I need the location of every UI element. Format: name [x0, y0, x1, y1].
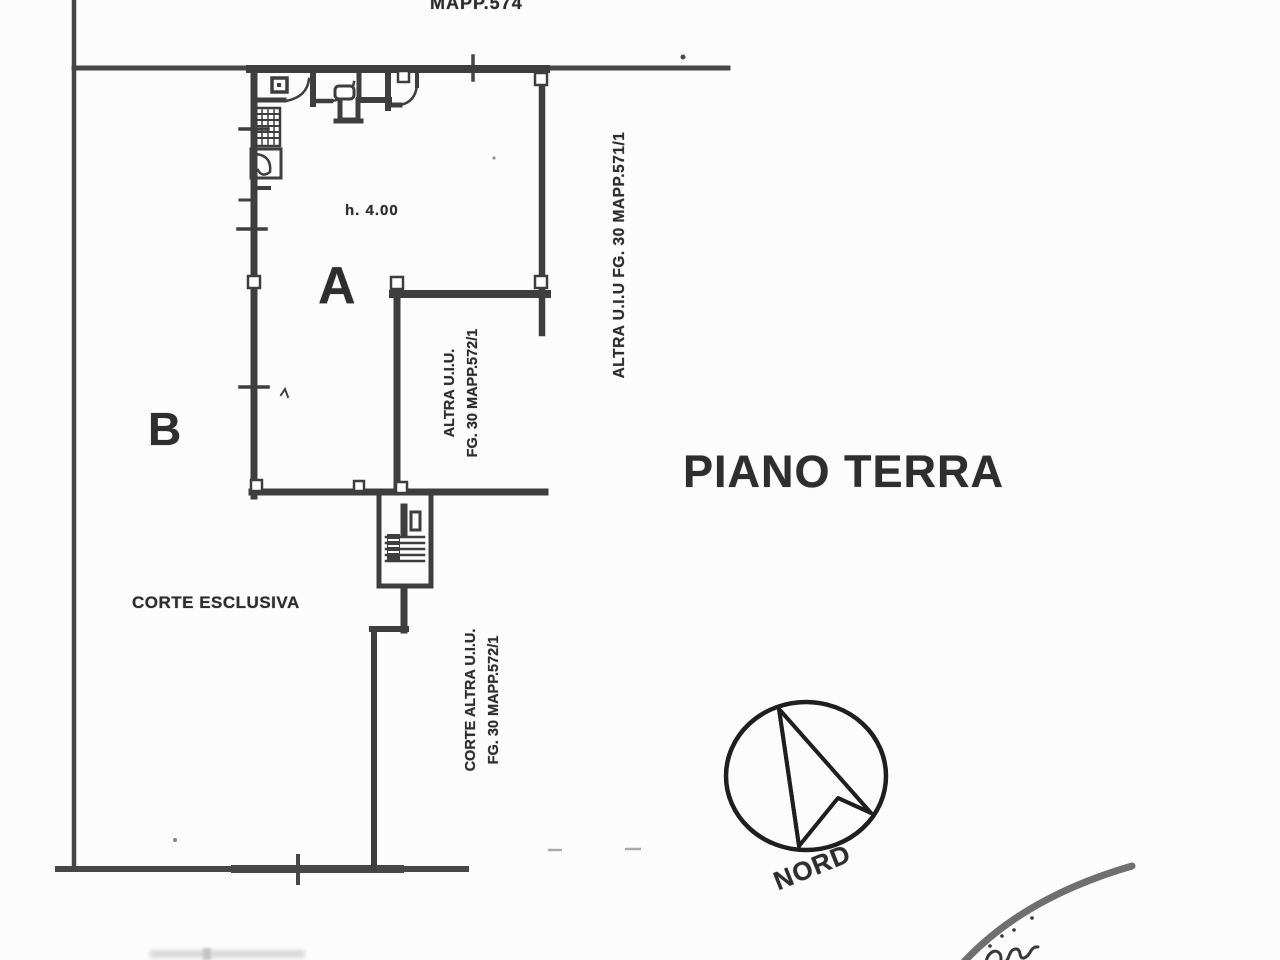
stamp-ink-dot	[988, 944, 992, 948]
room-b-label: B	[148, 402, 181, 456]
stamp-ink-dot	[1000, 934, 1004, 938]
bathroom-block	[251, 71, 417, 188]
speckle	[681, 55, 686, 60]
ceiling-height-note: h. 4.00	[345, 202, 399, 219]
stamp-signature-squiggle	[986, 947, 1038, 960]
pillar-marker	[251, 480, 262, 491]
pillar-marker	[248, 276, 260, 288]
neighbor-unit-right-label: ALTRA U.I.U FG. 30 MAPP.571/1	[611, 105, 629, 405]
floor-title: PIANO TERRA	[683, 446, 1004, 498]
speckle	[492, 156, 495, 159]
compass-circle	[726, 702, 886, 850]
staircase-block	[372, 498, 431, 868]
stamp-fragment	[962, 866, 1132, 960]
neighbor-unit-inner-line1: ALTRA U.I.U.	[439, 308, 462, 478]
parcel-label-top: MAPP.574	[430, 0, 523, 14]
stamp-ink-dot	[1012, 928, 1016, 932]
neighbor-courtyard-label: CORTE ALTRA U.I.U. FG. 30 MAPP.572/1	[460, 605, 506, 795]
cutoff-text-smudge	[203, 948, 211, 960]
room-a-label: A	[318, 256, 356, 316]
cutoff-text-smudge	[150, 950, 305, 958]
stamp-ink-dot	[1030, 916, 1034, 920]
pillar-marker	[354, 481, 364, 491]
stair-landing	[411, 512, 420, 530]
stamp-arc	[962, 866, 1132, 960]
stair-dark-flight	[387, 534, 400, 562]
duct-protrusion	[336, 100, 361, 121]
north-needle	[779, 709, 871, 846]
pencil-check-mark	[281, 389, 288, 397]
floor-plan-drawing	[0, 0, 1280, 960]
faint-dash	[548, 849, 641, 850]
pillar-marker	[396, 482, 407, 493]
exclusive-courtyard-label: CORTE ESCLUSIVA	[132, 593, 300, 613]
neighbor-courtyard-line2: FG. 30 MAPP.572/1	[483, 605, 506, 795]
speckle	[173, 838, 177, 842]
door-swing-arc	[400, 84, 417, 105]
neighbor-unit-inner-line2: FG. 30 MAPP.572/1	[462, 308, 485, 478]
pillar-marker	[535, 276, 547, 288]
neighbor-courtyard-line1: CORTE ALTRA U.I.U.	[460, 605, 483, 795]
pillar-marker	[391, 277, 403, 289]
door-swing-arc	[286, 79, 309, 101]
scanned-floor-plan-page: MAPP.574 h. 4.00 A B PIANO TERRA CORTE E…	[0, 0, 1280, 960]
pillar-marker	[398, 71, 409, 82]
pillar-marker	[535, 73, 547, 85]
north-compass	[726, 702, 886, 850]
toilet-fixture-dot	[277, 83, 281, 87]
sink-fixture	[335, 86, 354, 99]
neighbor-unit-inner-label: ALTRA U.I.U. FG. 30 MAPP.572/1	[439, 308, 485, 478]
bidet-fixture-curve	[256, 154, 270, 175]
